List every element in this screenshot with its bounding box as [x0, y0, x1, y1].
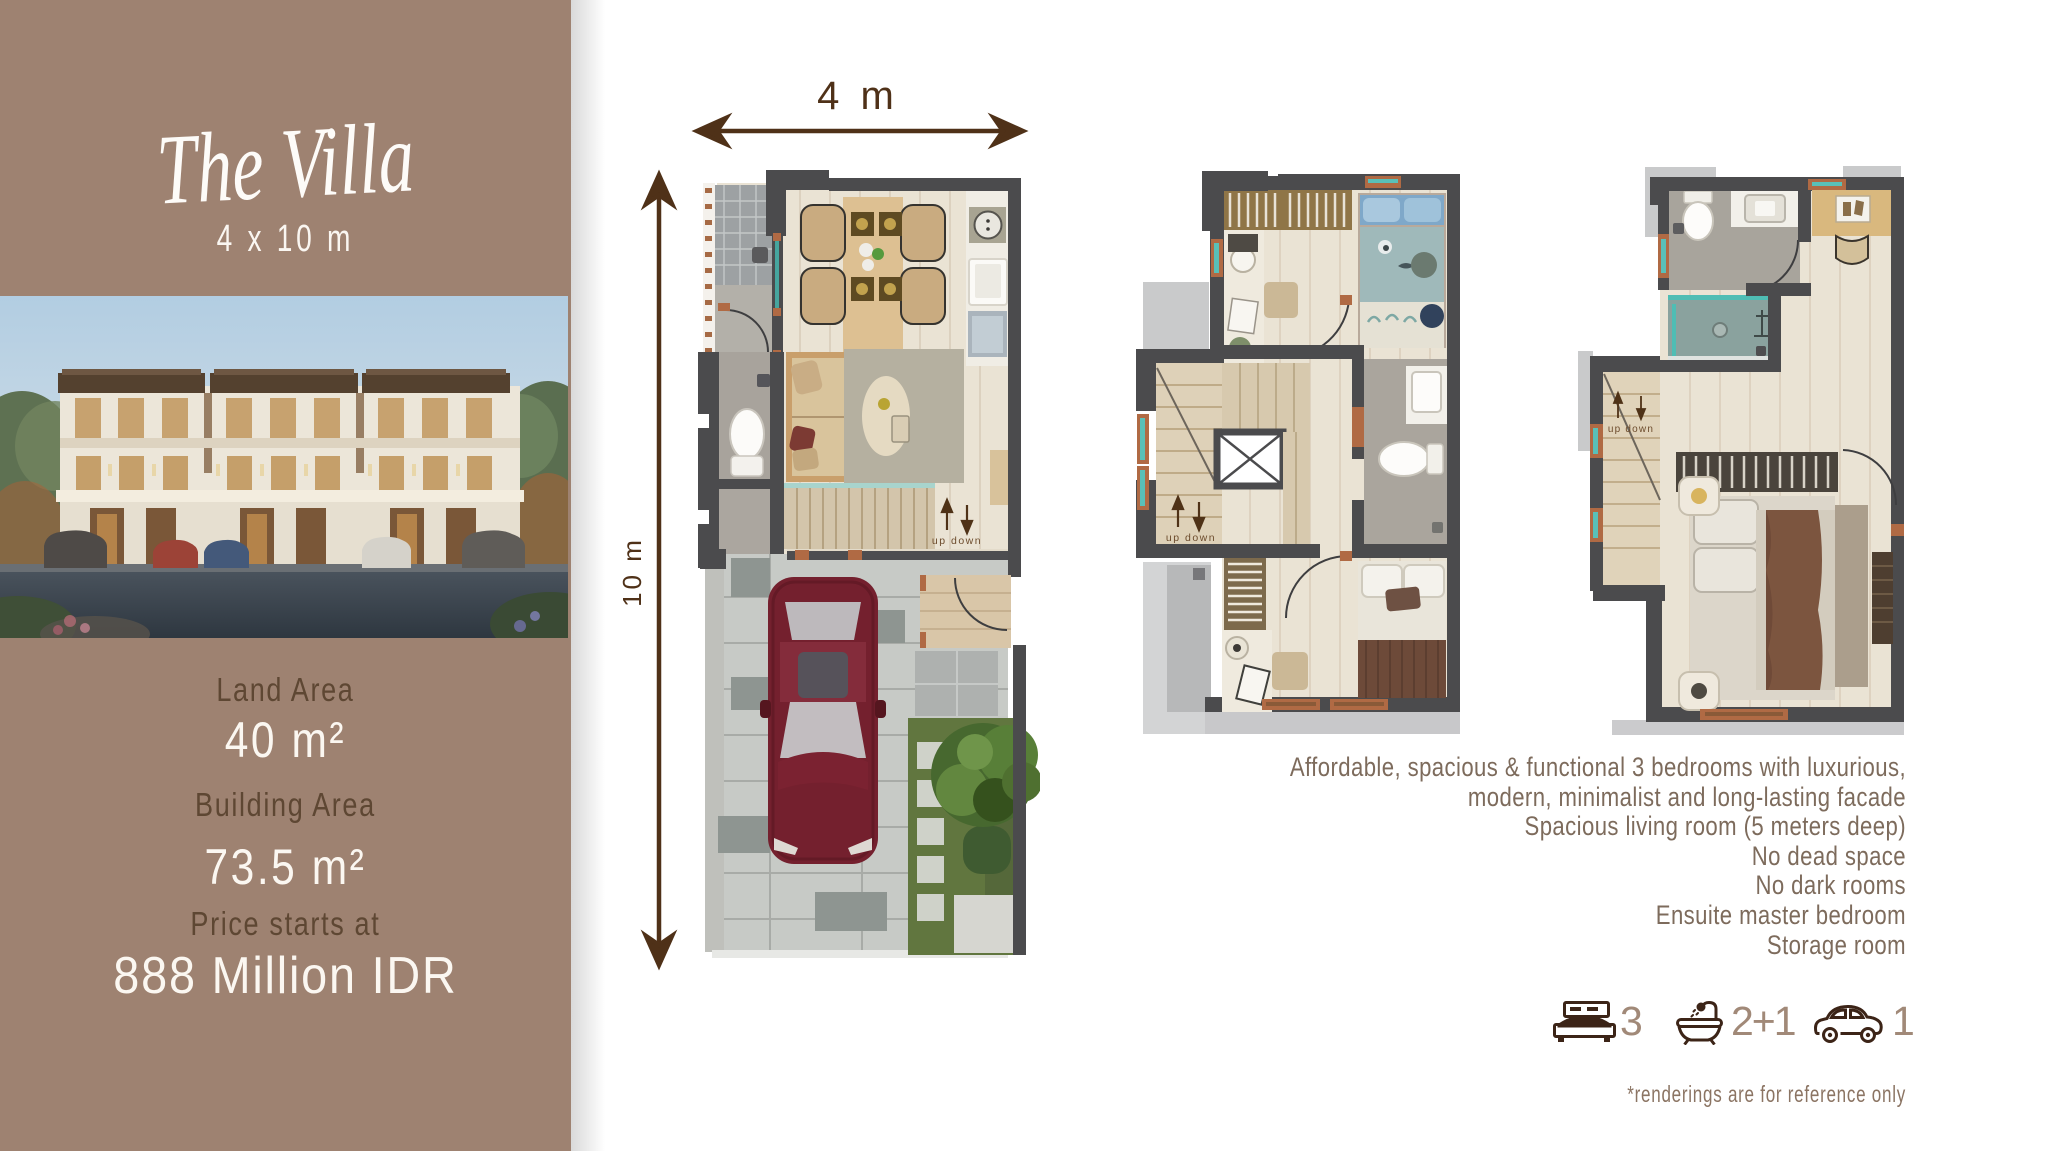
- svg-text:up down: up down: [932, 535, 982, 547]
- svg-text:10 m: 10 m: [617, 537, 647, 607]
- svg-text:up down: up down: [1166, 532, 1216, 544]
- svg-text:up down: up down: [1608, 424, 1654, 435]
- svg-text:4 m: 4 m: [817, 74, 899, 118]
